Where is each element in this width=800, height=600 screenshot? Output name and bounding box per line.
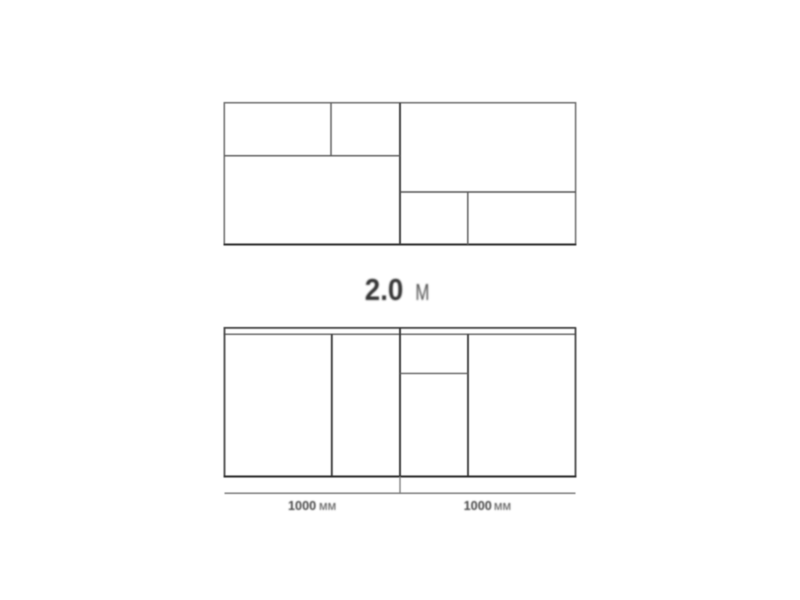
svg-text:2.0: 2.0 xyxy=(365,273,404,307)
svg-text:М: М xyxy=(415,279,429,305)
svg-text:мм: мм xyxy=(494,498,511,513)
svg-text:1000: 1000 xyxy=(464,498,492,513)
svg-text:мм: мм xyxy=(319,498,336,513)
svg-text:1000: 1000 xyxy=(288,498,316,513)
